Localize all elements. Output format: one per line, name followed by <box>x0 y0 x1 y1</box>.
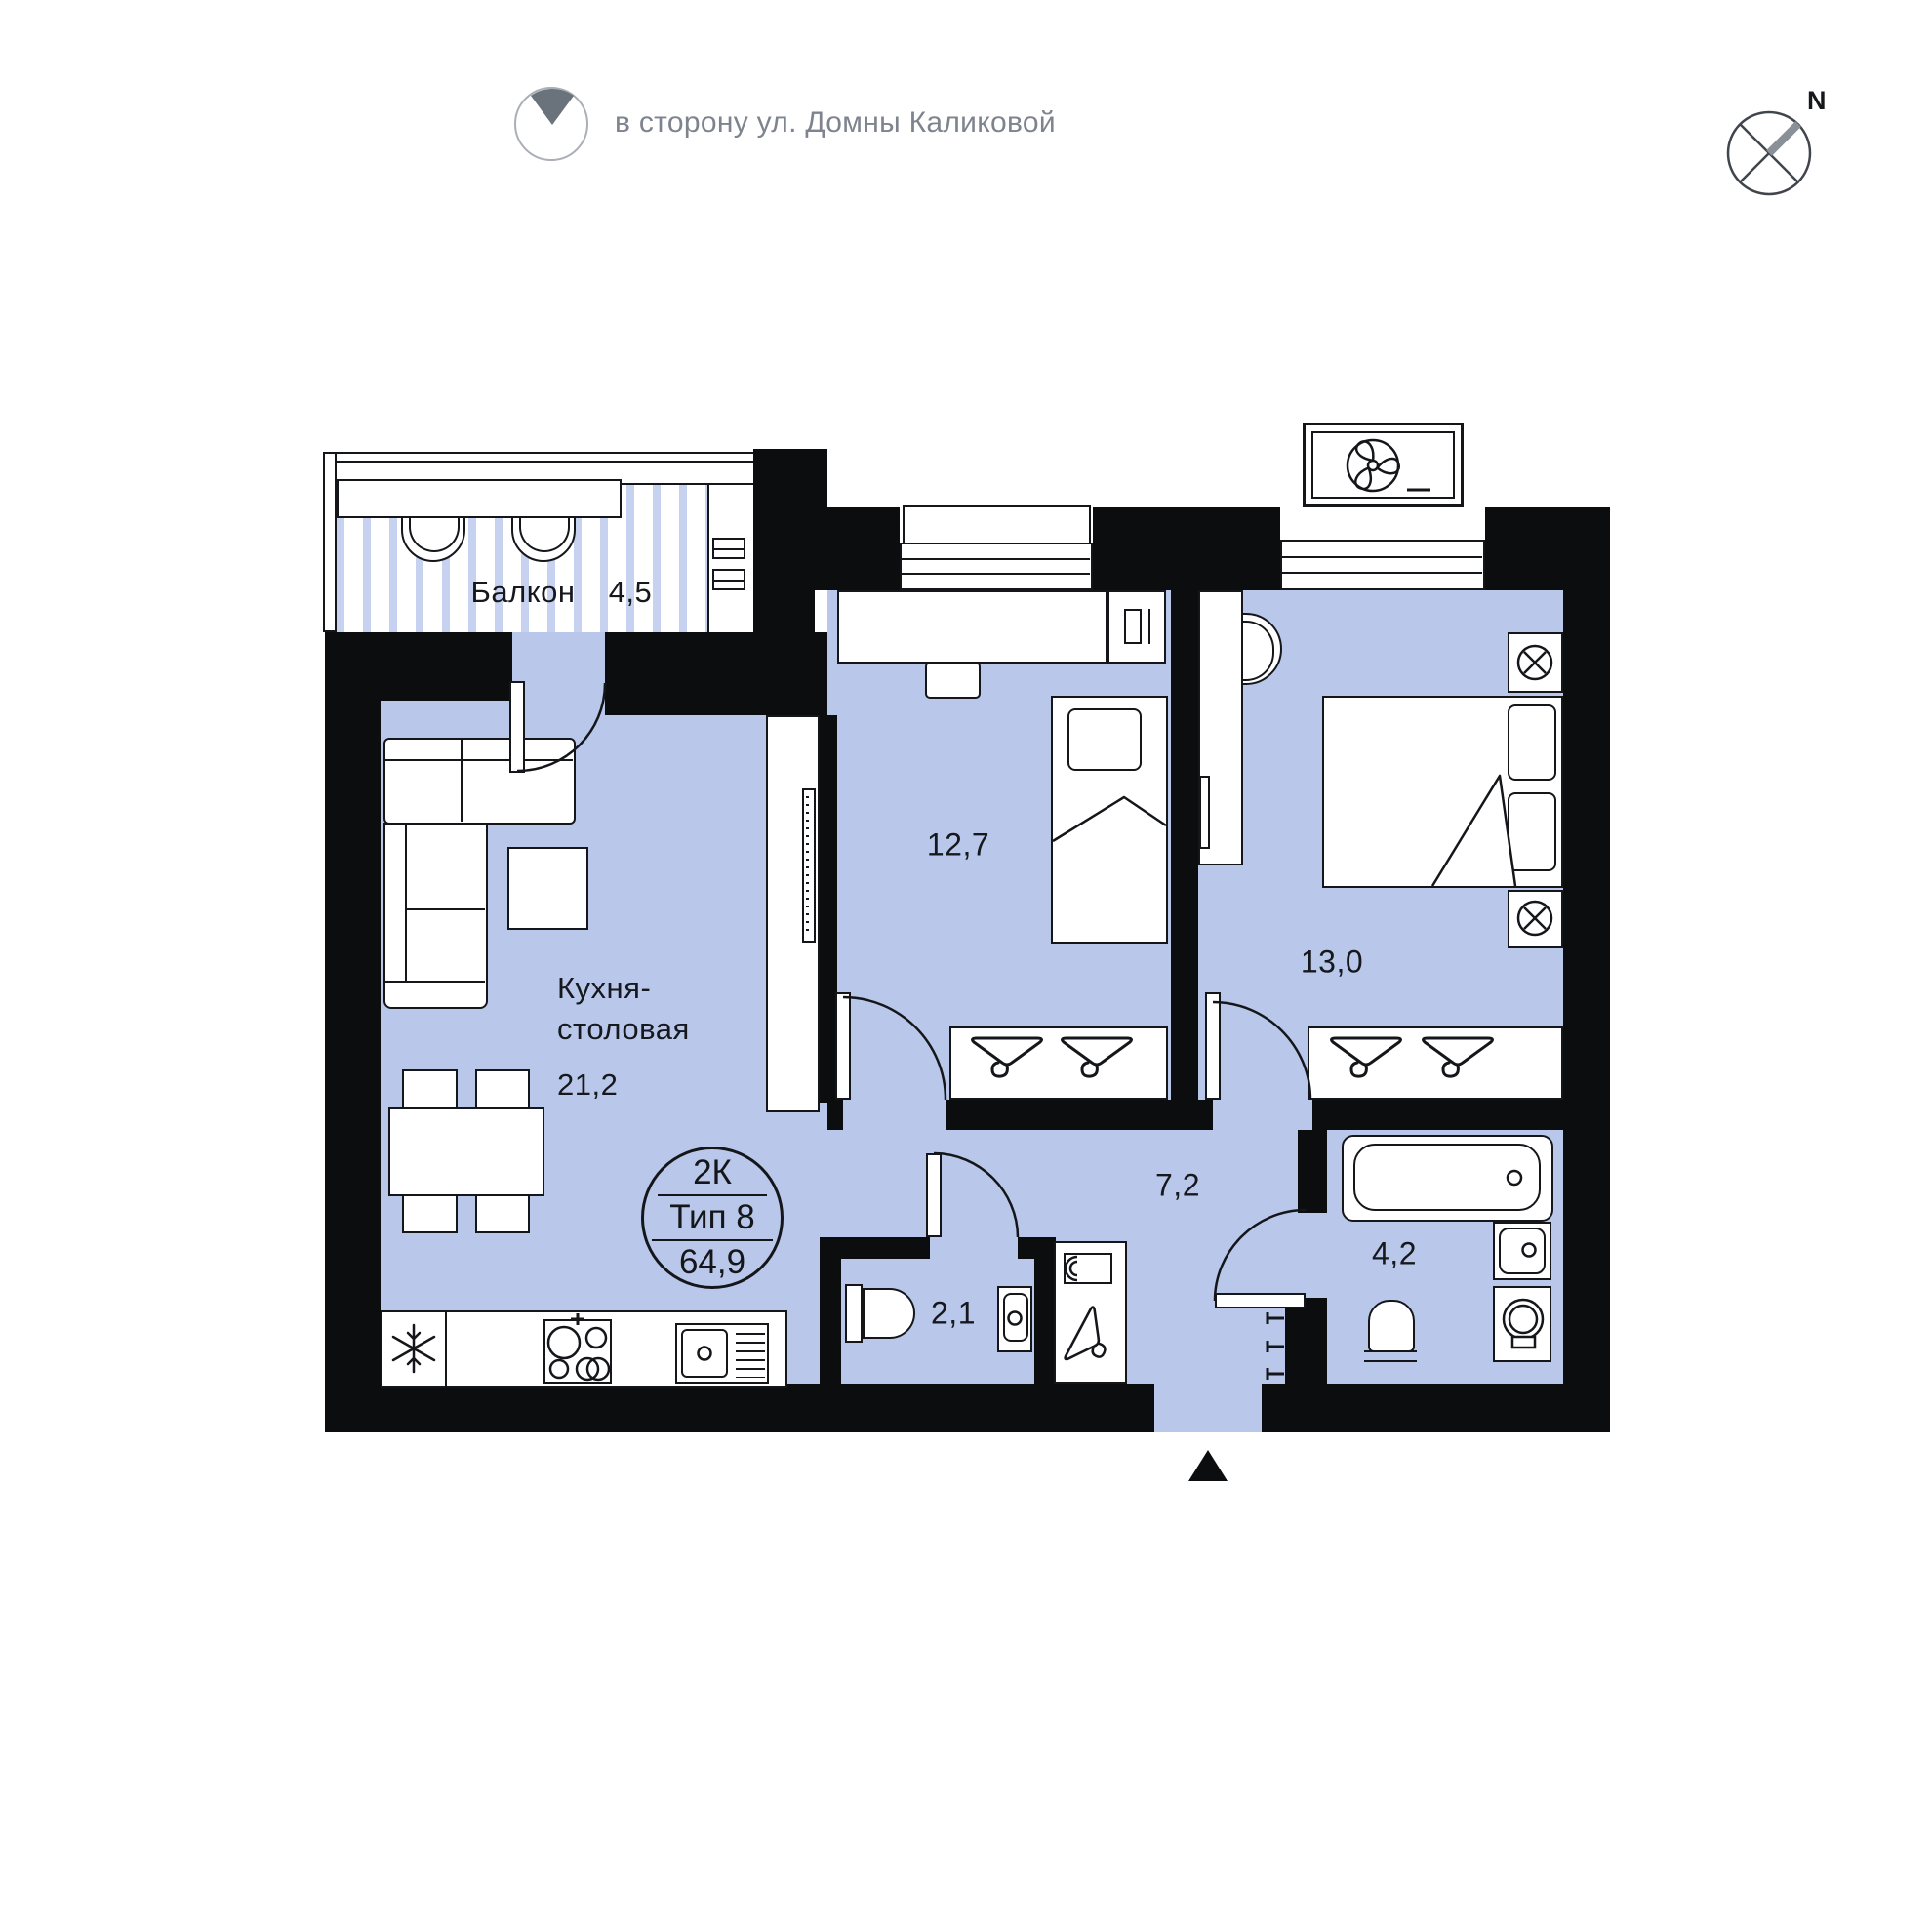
entrance-arrow-icon <box>1188 1450 1228 1481</box>
detail-line <box>405 908 485 910</box>
detail-line <box>1311 431 1455 499</box>
badge-divider <box>658 1194 767 1196</box>
compass-north-label: N <box>1807 86 1827 116</box>
window-sill <box>903 505 1091 544</box>
bathtub <box>1342 1135 1553 1222</box>
wall <box>1298 1130 1327 1213</box>
kitchen-area-label: 21,2 <box>557 1067 618 1103</box>
dining-chair <box>475 1193 530 1233</box>
toilet-tank <box>845 1284 863 1343</box>
floor-plan-page: в сторону ул. Домны Каликовой N <box>0 0 1932 1932</box>
desk-chair <box>925 662 981 699</box>
wall <box>946 1100 1213 1130</box>
door-leaf <box>835 992 851 1100</box>
kitchen-sink <box>675 1323 769 1384</box>
detail-line <box>385 759 573 761</box>
sofa-chaise <box>383 823 488 1009</box>
detail-line <box>409 517 460 552</box>
kitchen-label-line2: столовая <box>557 1012 690 1047</box>
door-leaf <box>509 681 525 773</box>
wall <box>771 449 827 507</box>
direction-label: в сторону ул. Домны Каликовой <box>615 106 1056 140</box>
balcony-counter <box>337 479 622 518</box>
toilet-tank <box>1364 1350 1417 1362</box>
bedroom2-area-label: 13,0 <box>1301 945 1363 981</box>
wardrobe <box>949 1026 1168 1100</box>
wc-area-label: 2,1 <box>931 1296 976 1332</box>
desk <box>837 590 1107 664</box>
wall <box>820 1237 841 1384</box>
wall <box>1563 507 1610 1432</box>
bedroom1-area-label: 12,7 <box>927 827 989 864</box>
wall <box>818 715 837 1103</box>
bedroom2-window <box>1280 540 1485 590</box>
nightstand <box>1107 590 1166 664</box>
wall <box>325 632 381 1432</box>
detail-line <box>1282 572 1482 574</box>
dining-chair <box>402 1193 458 1233</box>
sink-basin <box>1499 1228 1546 1274</box>
balcony-vent <box>712 538 745 559</box>
apartment-badge: 2К Тип 8 64,9 <box>641 1147 784 1289</box>
sofa <box>383 738 576 825</box>
dining-chair <box>402 1069 458 1110</box>
nightstand <box>1508 890 1563 948</box>
kitchen-label-line1: Кухня- <box>557 971 651 1006</box>
pillow <box>1508 792 1556 871</box>
wall <box>1262 1384 1610 1432</box>
wall <box>325 632 512 701</box>
detail-line <box>405 825 407 981</box>
dining-table <box>388 1107 544 1196</box>
bedroom1-window <box>900 543 1093 590</box>
wall <box>1312 1100 1563 1130</box>
detail-line <box>806 796 809 935</box>
wall <box>605 632 827 715</box>
badge-divider <box>652 1239 773 1241</box>
detail-line <box>902 558 1090 560</box>
toilet-bowl <box>1368 1300 1415 1352</box>
bath-sink <box>1493 1222 1551 1280</box>
wc-sink <box>997 1286 1032 1352</box>
ac-unit <box>1303 423 1464 507</box>
wall <box>1093 507 1280 590</box>
detail-line <box>1148 609 1150 644</box>
wardrobe <box>1308 1026 1563 1100</box>
wall <box>815 507 900 590</box>
drainboard-icon <box>736 1333 765 1378</box>
door-leaf <box>1215 1293 1306 1308</box>
wall <box>325 1384 1154 1432</box>
sink-basin <box>681 1329 728 1378</box>
direction-wedge-icon <box>514 87 588 161</box>
detail-line <box>714 580 744 582</box>
coffee-table <box>507 847 588 930</box>
entrance-floor <box>1154 1384 1262 1432</box>
nightstand <box>1508 632 1563 693</box>
badge-type: Тип 8 <box>669 1198 755 1237</box>
pillow <box>1508 704 1556 781</box>
wall <box>1171 590 1198 1100</box>
detail-line <box>385 981 485 983</box>
badge-rooms: 2К <box>693 1153 732 1192</box>
detail-line <box>1282 556 1482 558</box>
detail-line <box>902 573 1090 575</box>
door-leaf <box>926 1153 942 1237</box>
detail-line <box>325 461 753 463</box>
balcony-vent <box>712 569 745 590</box>
hallway-area-label: 7,2 <box>1155 1168 1200 1204</box>
stove <box>543 1319 612 1384</box>
bathroom-area-label: 4,2 <box>1372 1236 1417 1272</box>
badge-area: 64,9 <box>679 1243 745 1282</box>
washing-machine <box>1493 1286 1551 1362</box>
tv-icon <box>802 788 816 943</box>
balcony-label: Балкон <box>471 575 576 610</box>
detail-line <box>1243 621 1274 681</box>
tv-icon <box>1199 776 1210 849</box>
detail-line <box>1353 1144 1541 1211</box>
lamp-item <box>1124 609 1142 644</box>
detail-line <box>461 740 463 822</box>
toilet-bowl <box>863 1288 915 1339</box>
detail-line <box>714 548 744 550</box>
dining-chair <box>475 1069 530 1110</box>
detail-line <box>519 517 570 552</box>
wall <box>1018 1237 1056 1259</box>
sink-basin <box>1003 1293 1028 1342</box>
compass-icon <box>1720 104 1818 202</box>
balcony-glazing-left <box>323 452 337 632</box>
wall <box>827 1100 843 1130</box>
fridge <box>381 1310 447 1388</box>
wall <box>1285 1298 1327 1384</box>
door-leaf <box>1205 992 1221 1100</box>
pillow <box>1067 708 1142 771</box>
balcony-area-label: 4,5 <box>609 575 653 610</box>
mirror-box <box>1064 1253 1112 1284</box>
